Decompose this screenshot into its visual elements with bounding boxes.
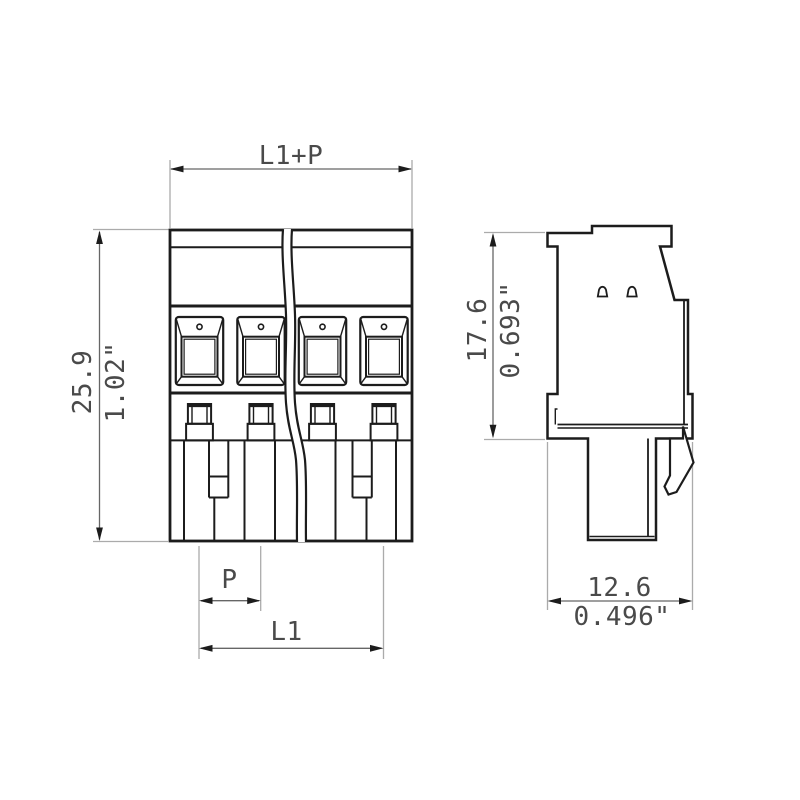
screw-hole	[197, 324, 202, 329]
dim-text-side-height-mm: 17.6	[463, 298, 493, 363]
arrowhead	[170, 166, 184, 173]
dim-text-side-width-inch: 0.496"	[574, 602, 671, 632]
arrowhead	[490, 233, 497, 247]
technical-drawing: L1+P 25.9 1.02" P L1 17.6 0.693" 12.6 0.…	[0, 0, 800, 800]
screw-hole	[258, 324, 263, 329]
dim-text-l1: L1	[270, 617, 302, 647]
side-view	[548, 226, 694, 540]
arrowhead	[247, 597, 261, 604]
arrowhead	[96, 231, 103, 245]
arrowhead	[96, 528, 103, 542]
dim-text-front-height-inch: 1.02"	[101, 342, 131, 423]
dim-text-l1p: L1+P	[259, 141, 324, 171]
arrowhead	[679, 598, 693, 605]
vent-hole	[627, 287, 636, 297]
screw-hole	[381, 324, 386, 329]
dim-text-side-height-inch: 0.693"	[496, 282, 526, 379]
front-view	[170, 229, 412, 542]
drawing-page: L1+P 25.9 1.02" P L1 17.6 0.693" 12.6 0.…	[0, 0, 800, 800]
arrowhead	[370, 645, 384, 652]
arrowhead	[199, 645, 213, 652]
screw-hole	[320, 324, 325, 329]
vent-hole	[598, 287, 607, 297]
dim-text-pitch: P	[221, 565, 237, 595]
dim-text-front-height-mm: 25.9	[68, 350, 98, 415]
arrowhead	[399, 166, 413, 173]
arrowhead	[490, 425, 497, 439]
dim-text-side-width-mm: 12.6	[587, 573, 652, 603]
arrowhead	[548, 598, 562, 605]
arrowhead	[199, 597, 213, 604]
